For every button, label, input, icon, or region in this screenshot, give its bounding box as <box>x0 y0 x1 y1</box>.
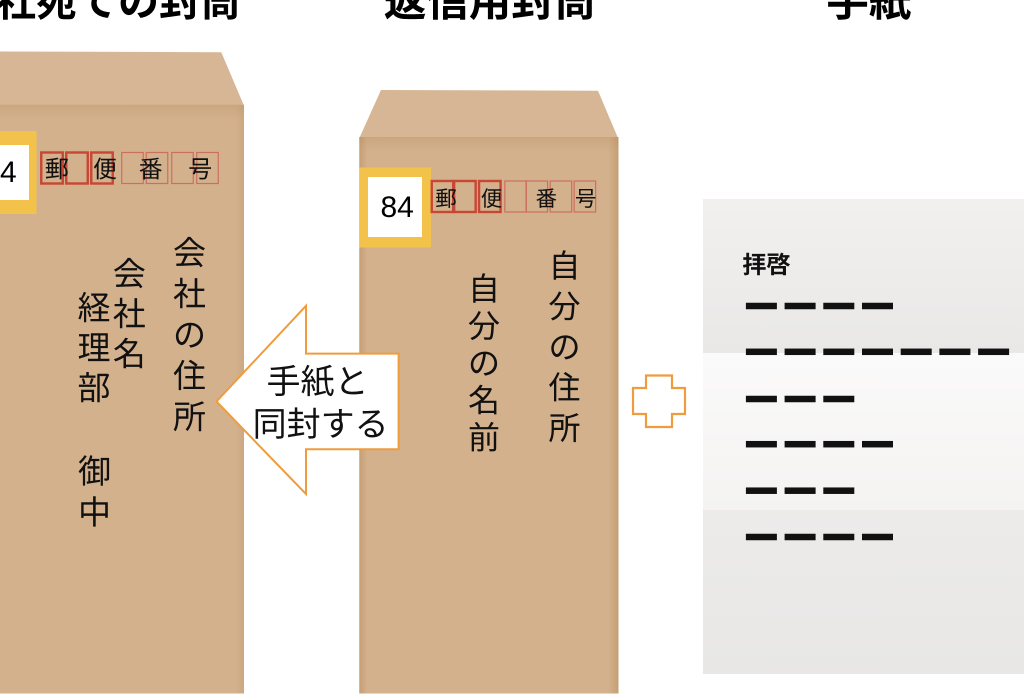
svg-text:84: 84 <box>381 191 414 224</box>
svg-text:84: 84 <box>0 156 17 189</box>
